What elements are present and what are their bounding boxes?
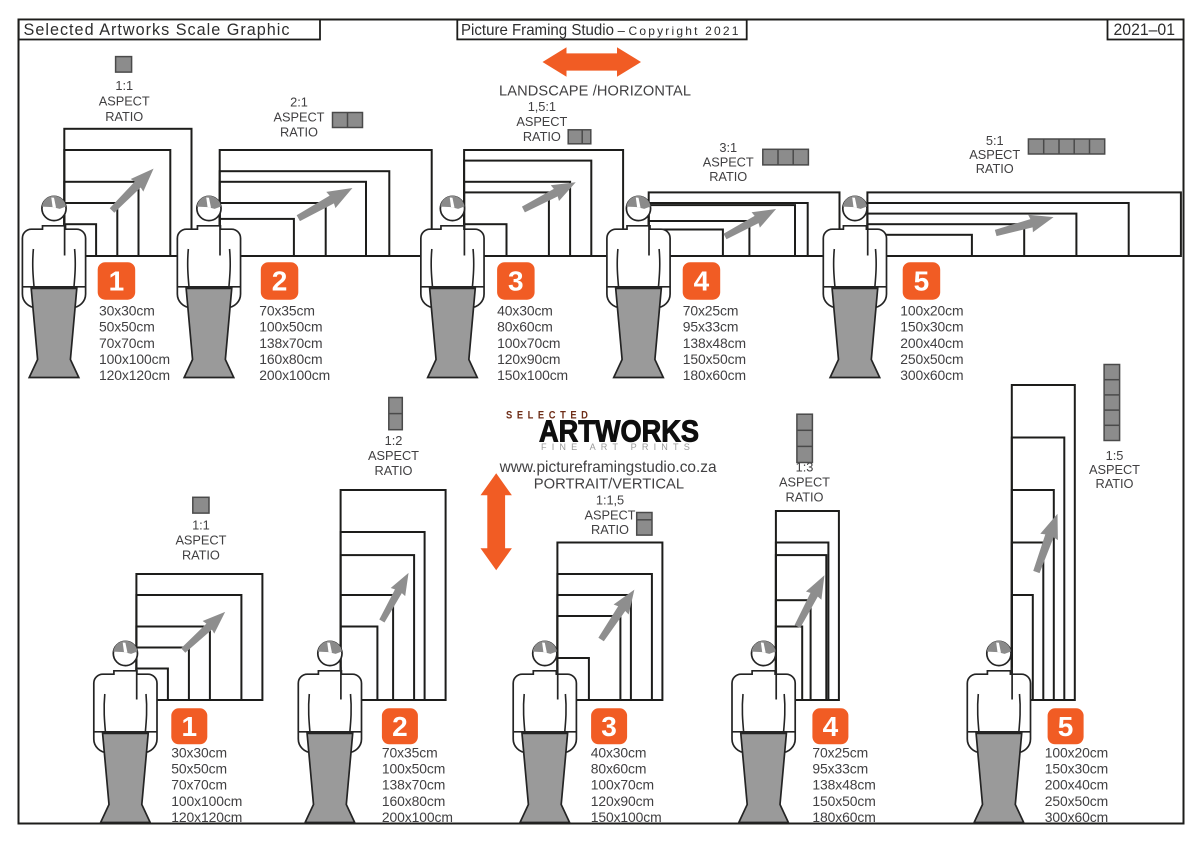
svg-text:Selected Artworks Scale Graphi: Selected Artworks Scale Graphic	[24, 21, 290, 39]
svg-text:5: 5	[914, 265, 930, 296]
svg-text:4: 4	[823, 711, 839, 742]
svg-text:1: 1	[109, 265, 125, 296]
svg-text:70x25cm95x33cm138x48cm150x50cm: 70x25cm95x33cm138x48cm150x50cm180x60cm	[812, 744, 875, 825]
svg-text:Picture Framing Studio – Copyr: Picture Framing Studio – Copyright 2021	[461, 22, 739, 39]
svg-text:100x20cm150x30cm200x40cm250x50: 100x20cm150x30cm200x40cm250x50cm300x60cm	[1045, 744, 1108, 825]
svg-text:LANDSCAPE /HORIZONTAL: LANDSCAPE /HORIZONTAL	[499, 84, 691, 100]
svg-text:100x20cm150x30cm200x40cm250x50: 100x20cm150x30cm200x40cm250x50cm300x60cm	[900, 303, 963, 384]
svg-text:PORTRAIT/VERTICAL: PORTRAIT/VERTICAL	[534, 477, 684, 493]
svg-text:FINE ART PRINTS: FINE ART PRINTS	[541, 442, 695, 452]
svg-text:3: 3	[508, 265, 524, 296]
svg-text:1: 1	[182, 711, 198, 742]
svg-text:70x25cm95x33cm138x48cm150x50cm: 70x25cm95x33cm138x48cm150x50cm180x60cm	[683, 303, 746, 384]
svg-text:2: 2	[272, 265, 288, 296]
svg-text:www.pictureframingstudio.co.za: www.pictureframingstudio.co.za	[499, 459, 717, 476]
svg-text:2: 2	[392, 711, 408, 742]
svg-text:5: 5	[1058, 711, 1074, 742]
svg-text:4: 4	[694, 265, 710, 296]
svg-text:3: 3	[601, 711, 617, 742]
svg-text:2021–01: 2021–01	[1114, 21, 1176, 39]
